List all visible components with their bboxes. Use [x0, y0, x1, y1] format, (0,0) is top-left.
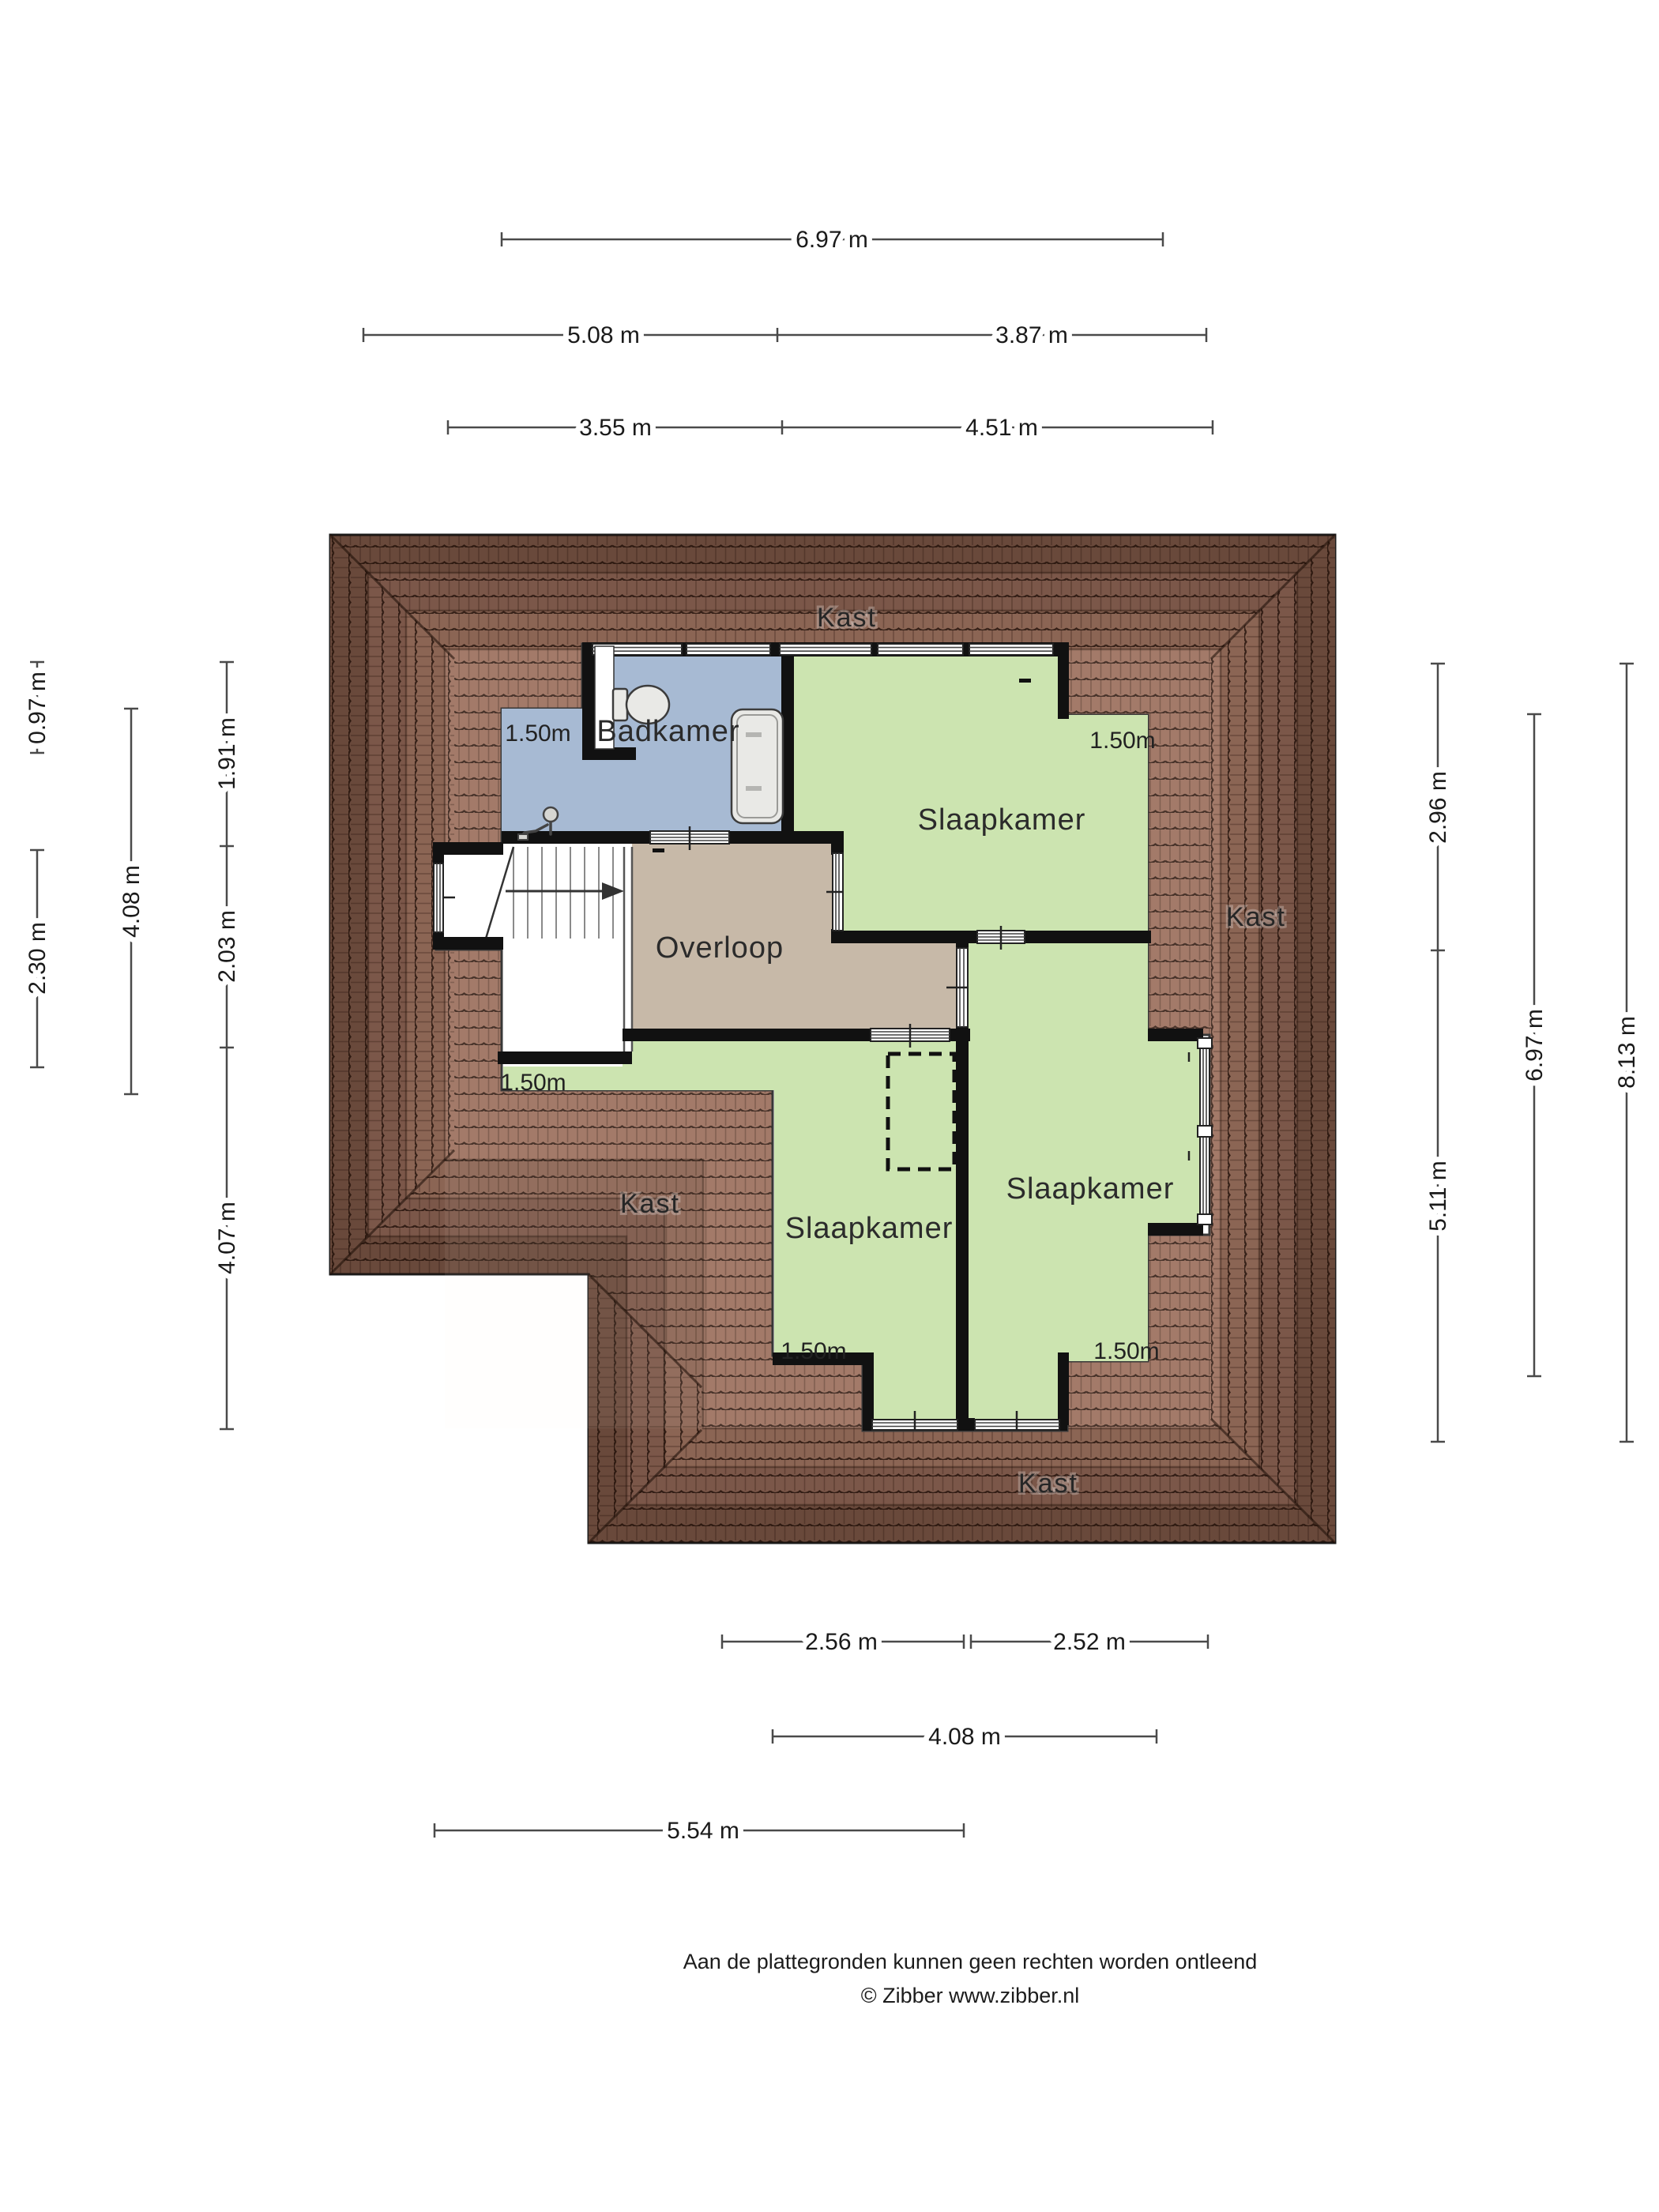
kast-label-bottom: Kast: [1018, 1469, 1078, 1499]
dimensions-right: 2.96 m 5.11 m 6.97 m 8.13 m: [1425, 664, 1640, 1442]
dim-label-left-col3-bottom: 4.07 m: [214, 1202, 240, 1274]
stair-void: [503, 950, 632, 1061]
room-label-slaapkamer-bottom-left: Slaapkamer: [785, 1212, 954, 1245]
dim-label-top-row3-right: 4.51 m: [965, 415, 1038, 441]
switch-mark-overloop: [653, 848, 664, 852]
room-label-slaapkamer-top: Slaapkamer: [918, 803, 1086, 837]
dim-label-top-row1: 6.97 m: [796, 227, 868, 253]
dim-label-bottom-row1-left: 2.56 m: [805, 1629, 878, 1655]
dim-label-bottom-row2: 4.08 m: [928, 1724, 1001, 1750]
dim-label-right-col1-bottom: 5.11 m: [1425, 1161, 1451, 1232]
knee-label-bedroom-top-right: 1.50m: [1089, 728, 1155, 754]
knee-label-bedroom-bottom-left: 1.50m: [781, 1338, 846, 1364]
dim-label-left-col3-top: 1.91 m: [214, 717, 240, 790]
footer-disclaimer: Aan de plattegronden kunnen geen rechten…: [683, 1950, 1258, 1973]
room-label-slaapkamer-bottom-right: Slaapkamer: [1006, 1172, 1175, 1206]
knee-label-under-stairs: 1.50m: [500, 1070, 566, 1096]
dim-label-bottom-row3: 5.54 m: [667, 1818, 739, 1844]
footer-copyright: © Zibber www.zibber.nl: [861, 1984, 1080, 2007]
floorplan-page: 6.97 m 5.08 m 3.87 m 3.55 m 4.51 m 0.97 …: [0, 0, 1659, 2212]
dimensions-top: 6.97 m 5.08 m 3.87 m 3.55 m 4.51 m: [363, 227, 1213, 441]
dimensions-left: 0.97 m 2.30 m 4.08 m 1.91 m 2.03 m 4.07 …: [24, 662, 240, 1429]
floorplan-drawing: 6.97 m 5.08 m 3.87 m 3.55 m 4.51 m 0.97 …: [0, 0, 1659, 2212]
dim-label-top-row2-left: 5.08 m: [567, 322, 640, 348]
knee-label-bedroom-bottom-right: 1.50m: [1093, 1338, 1159, 1364]
dim-label-right-col1-top: 2.96 m: [1425, 771, 1451, 844]
dim-label-right-col3: 8.13 m: [1614, 1016, 1640, 1089]
dim-label-left-col3-mid: 2.03 m: [214, 910, 240, 983]
room-label-overloop: Overloop: [656, 931, 784, 965]
dim-label-top-row3-left: 3.55 m: [579, 415, 652, 441]
dim-label-top-row2-right: 3.87 m: [995, 322, 1068, 348]
dim-label-left-col1-bottom: 2.30 m: [24, 922, 51, 995]
window-top-band: [592, 644, 1053, 655]
switch-mark-bedroom: [1019, 679, 1031, 683]
dim-label-bottom-row1-right: 2.52 m: [1053, 1629, 1126, 1655]
footer: Aan de plattegronden kunnen geen rechten…: [683, 1950, 1258, 2007]
knee-label-bathroom: 1.50m: [505, 720, 570, 747]
dim-label-right-col2: 6.97 m: [1522, 1009, 1548, 1082]
kast-label-top: Kast: [817, 603, 877, 633]
room-label-badkamer: Badkamer: [596, 715, 739, 748]
kast-label-left: Kast: [620, 1189, 680, 1219]
dim-label-left-col2: 4.08 m: [118, 865, 145, 938]
kast-label-right: Kast: [1226, 902, 1286, 932]
dimensions-bottom: 2.56 m 2.52 m 4.08 m 5.54 m: [434, 1629, 1208, 1844]
dim-label-left-col1-top: 0.97 m: [24, 671, 51, 744]
